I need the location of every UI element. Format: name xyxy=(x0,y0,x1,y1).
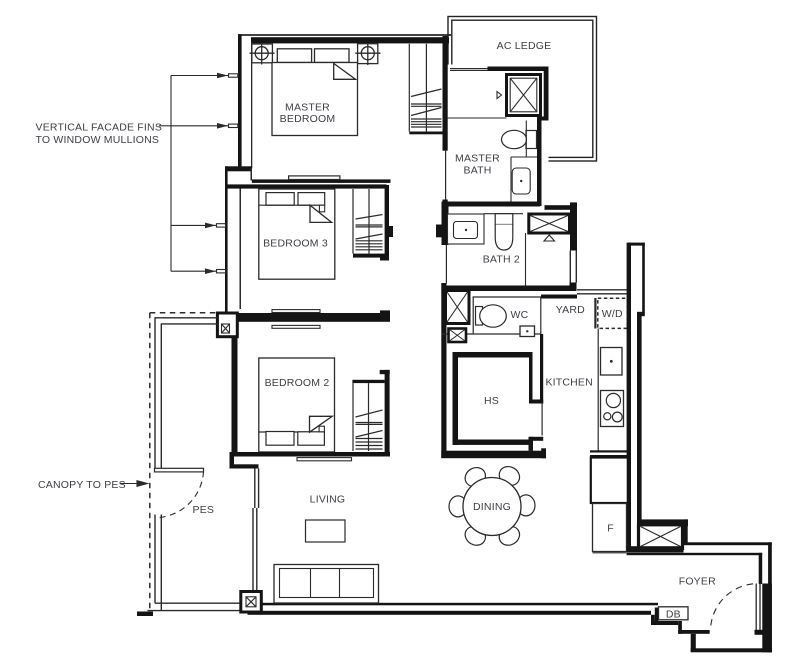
svg-text:MASTER: MASTER xyxy=(455,153,500,165)
svg-text:CANOPY TO PES: CANOPY TO PES xyxy=(38,479,126,491)
svg-text:DINING: DINING xyxy=(473,501,511,513)
svg-text:BEDROOM 2: BEDROOM 2 xyxy=(265,377,330,389)
svg-text:BATH: BATH xyxy=(463,165,491,177)
svg-text:HS: HS xyxy=(484,395,499,407)
svg-text:BEDROOM: BEDROOM xyxy=(280,113,336,125)
svg-text:F: F xyxy=(607,523,614,535)
svg-text:FOYER: FOYER xyxy=(679,575,716,587)
svg-text:TO WINDOW MULLIONS: TO WINDOW MULLIONS xyxy=(36,134,160,146)
svg-text:KITCHEN: KITCHEN xyxy=(545,377,593,389)
svg-text:AC LEDGE: AC LEDGE xyxy=(497,40,552,52)
svg-text:MASTER: MASTER xyxy=(285,102,330,114)
svg-text:WC: WC xyxy=(511,309,529,321)
svg-text:VERTICAL FACADE FINS: VERTICAL FACADE FINS xyxy=(36,122,163,134)
svg-text:YARD: YARD xyxy=(556,304,585,316)
svg-text:LIVING: LIVING xyxy=(310,494,346,506)
svg-text:BATH 2: BATH 2 xyxy=(483,254,520,266)
svg-text:DB: DB xyxy=(666,608,681,620)
svg-text:W/D: W/D xyxy=(602,308,623,320)
svg-text:BEDROOM 3: BEDROOM 3 xyxy=(263,238,328,250)
svg-text:PES: PES xyxy=(192,504,214,516)
